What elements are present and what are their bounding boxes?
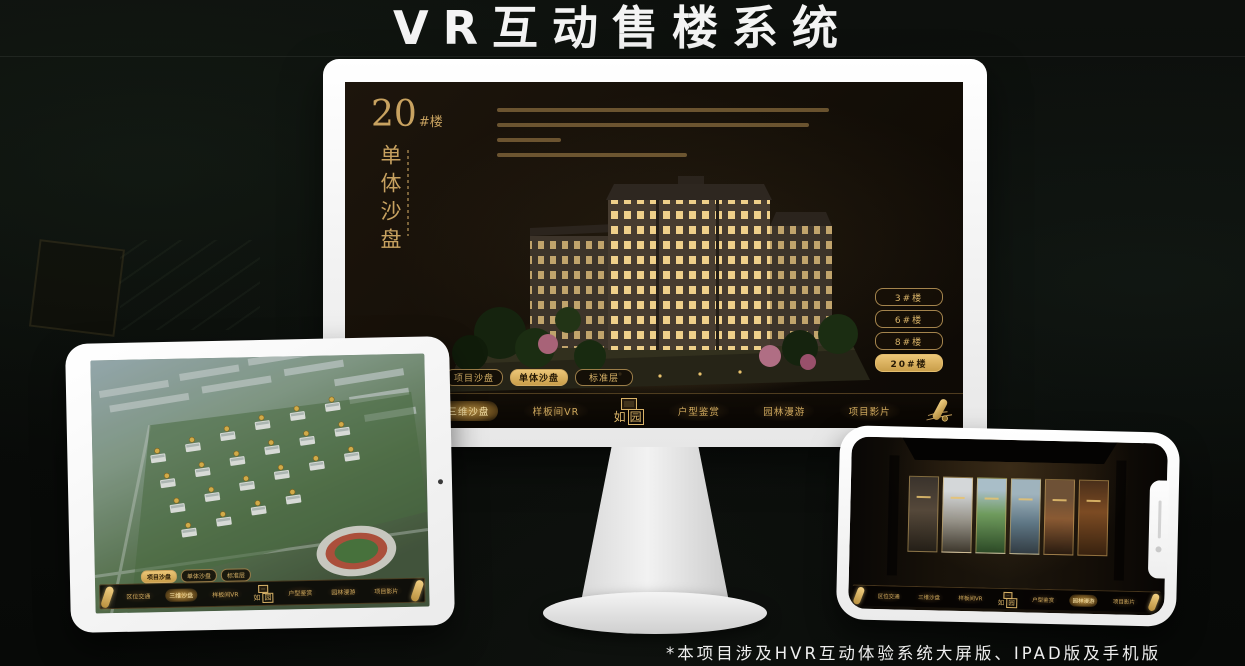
floor-button-group: 3#楼 6#楼 8#楼 20#楼 bbox=[875, 288, 943, 372]
building-heading-vertical: 单体沙盘 bbox=[375, 144, 405, 256]
floor-button-3[interactable]: 3#楼 bbox=[875, 288, 943, 306]
heading-divider bbox=[407, 150, 409, 236]
phone-nav-location-traffic[interactable]: 区位交通 bbox=[875, 590, 903, 603]
mode-tab-group: 项目沙盘 单体沙盘 标准层 bbox=[445, 369, 633, 386]
phone-screen: 区位交通 三维沙盘 样板间VR 如园 户型鉴赏 园林漫游 项目影片 bbox=[848, 436, 1168, 615]
tablet-tab-project-sandtable[interactable]: 项目沙盘 bbox=[141, 570, 177, 584]
tablet-nav-floorplan[interactable]: 户型鉴赏 bbox=[284, 586, 316, 600]
nav-item-floorplan[interactable]: 户型鉴赏 bbox=[669, 401, 729, 421]
roll-handle-icon[interactable] bbox=[852, 586, 865, 605]
background-plaque bbox=[29, 239, 125, 337]
logo-char-1: 如 bbox=[998, 598, 1005, 606]
tablet-nav-showroom-vr[interactable]: 样板间VR bbox=[208, 587, 243, 601]
floor-button-6[interactable]: 6#楼 bbox=[875, 310, 943, 328]
phone-nav-3d-sandtable[interactable]: 三维沙盘 bbox=[915, 591, 943, 604]
phone-nav-bar: 区位交通 三维沙盘 样板间VR 如园 户型鉴赏 园林漫游 项目影片 bbox=[852, 584, 1160, 612]
footnote: *本项目涉及HVR互动体验系统大屏版、IPAD版及手机版 bbox=[666, 640, 1161, 664]
roll-handle-icon[interactable] bbox=[1147, 593, 1160, 612]
scene-card-6[interactable] bbox=[1077, 480, 1109, 557]
nav-item-project-film[interactable]: 项目影片 bbox=[840, 401, 900, 421]
tablet-nav-3d-sandtable[interactable]: 三维沙盘 bbox=[165, 588, 197, 602]
monitor-stand-base bbox=[543, 592, 767, 634]
scene-card-4[interactable] bbox=[1009, 478, 1041, 555]
scene-card-2[interactable] bbox=[941, 477, 973, 554]
logo-char-1: 如 bbox=[253, 594, 260, 602]
camera-icon bbox=[438, 479, 443, 484]
tab-project-sandtable[interactable]: 项目沙盘 bbox=[445, 369, 503, 386]
floor-button-8[interactable]: 8#楼 bbox=[875, 332, 943, 350]
phone-nav-garden-roam[interactable]: 园林漫游 bbox=[1069, 594, 1097, 607]
building-heading: 20#楼 bbox=[371, 96, 443, 134]
tablet-tab-single-sandtable[interactable]: 单体沙盘 bbox=[181, 569, 217, 583]
nav-item-showroom-vr[interactable]: 样板间VR bbox=[524, 401, 589, 421]
logo-seal-icon bbox=[258, 585, 268, 593]
phone-nav-project-film[interactable]: 项目影片 bbox=[1110, 595, 1138, 608]
interior-pillar bbox=[887, 455, 900, 575]
interior-pillar bbox=[1114, 460, 1127, 580]
background-map-lines bbox=[120, 240, 260, 330]
logo-char-1: 如 bbox=[614, 410, 626, 424]
project-logo[interactable]: 如园 bbox=[614, 398, 644, 424]
tablet-nav-garden-roam[interactable]: 园林漫游 bbox=[327, 585, 359, 599]
logo-char-2: 园 bbox=[628, 409, 644, 425]
tablet-screen: 项目沙盘 单体沙盘 标准层 区位交通 三维沙盘 样板间VR 如园 户型鉴赏 园林… bbox=[90, 354, 429, 614]
stage: VR互动售楼系统 20#楼 单体沙盘 bbox=[0, 0, 1245, 666]
floor-button-20[interactable]: 20#楼 bbox=[875, 354, 943, 372]
scene-card-3[interactable] bbox=[975, 477, 1007, 554]
tablet-nav-project-film[interactable]: 项目影片 bbox=[370, 584, 402, 598]
page-title: VR互动售楼系统 bbox=[0, 0, 1245, 56]
tab-single-sandtable[interactable]: 单体沙盘 bbox=[510, 369, 568, 386]
tablet-device: 项目沙盘 单体沙盘 标准层 区位交通 三维沙盘 样板间VR 如园 户型鉴赏 园林… bbox=[65, 336, 455, 633]
phone-nav-showroom-vr[interactable]: 样板间VR bbox=[955, 592, 985, 605]
tab-standard-floor[interactable]: 标准层 bbox=[575, 369, 633, 386]
tablet-tab-standard-floor[interactable]: 标准层 bbox=[221, 568, 251, 582]
interior-roof-beam bbox=[902, 438, 1117, 465]
background-seam-line bbox=[0, 56, 1245, 57]
logo-char-2: 园 bbox=[1006, 597, 1017, 607]
phone-nav-floorplan[interactable]: 户型鉴赏 bbox=[1029, 594, 1057, 607]
roll-handle-icon[interactable] bbox=[410, 579, 425, 602]
phone-project-logo[interactable]: 如园 bbox=[998, 591, 1017, 606]
nav-item-garden-roam[interactable]: 园林漫游 bbox=[754, 401, 814, 421]
phone-notch bbox=[1148, 480, 1169, 578]
building-number-suffix: #楼 bbox=[419, 115, 443, 130]
scroll-icon[interactable] bbox=[925, 396, 955, 426]
logo-char-2: 园 bbox=[262, 593, 273, 603]
camera-icon bbox=[1155, 546, 1161, 552]
tablet-nav-location-traffic[interactable]: 区位交通 bbox=[122, 589, 154, 603]
speaker-slit-icon bbox=[1158, 500, 1162, 538]
smartphone-device: 区位交通 三维沙盘 样板间VR 如园 户型鉴赏 园林漫游 项目影片 bbox=[836, 425, 1180, 627]
building-number: 20 bbox=[371, 94, 417, 135]
tablet-project-logo[interactable]: 如园 bbox=[253, 585, 273, 602]
scene-card-1[interactable] bbox=[907, 476, 939, 553]
roll-handle-icon[interactable] bbox=[100, 585, 115, 608]
scene-card-5[interactable] bbox=[1043, 479, 1075, 556]
building-3d-model[interactable] bbox=[440, 148, 870, 398]
scene-gallery bbox=[907, 476, 1109, 557]
